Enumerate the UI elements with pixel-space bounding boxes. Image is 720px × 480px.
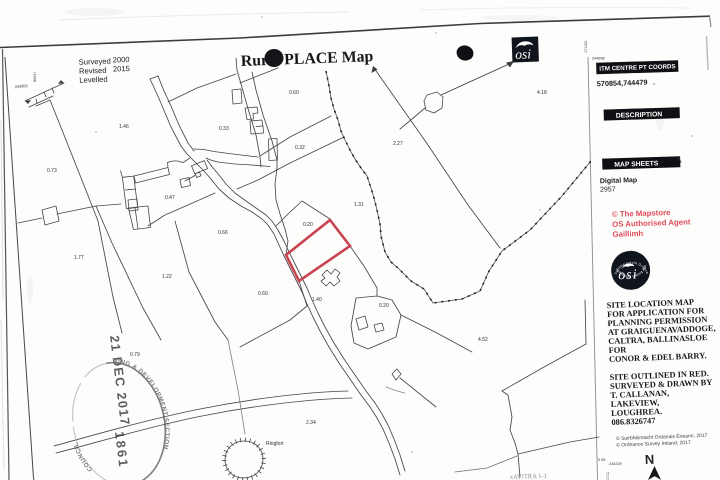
svg-text:COUNCIL: COUNCIL: [72, 441, 94, 472]
svg-text:1861: 1861: [112, 431, 131, 470]
svg-text:21 DEC 2017: 21 DEC 2017: [107, 335, 133, 427]
